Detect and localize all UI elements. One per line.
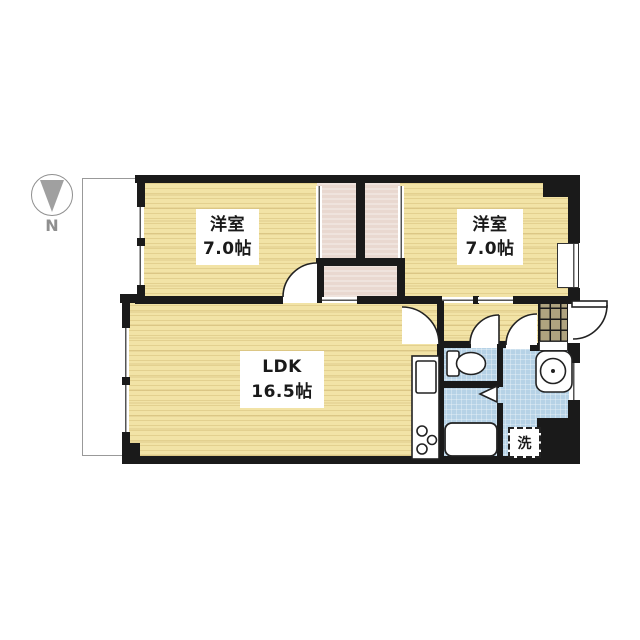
- bathroom-floor: [441, 383, 501, 460]
- wall: [497, 341, 506, 348]
- bedroom-west-label: 洋室 7.0帖: [196, 209, 259, 265]
- toilet-floor: [441, 345, 501, 385]
- compass-label: N: [40, 216, 64, 236]
- sliding-door: [478, 297, 513, 303]
- door-opening: [283, 297, 317, 303]
- ldk-label: LDK 16.5帖: [240, 351, 324, 408]
- closet-sliding-door: [316, 186, 322, 258]
- laundry-box: 洗: [508, 427, 541, 458]
- wall: [357, 296, 442, 304]
- wall: [568, 343, 580, 363]
- entrance-tiles: [538, 300, 568, 343]
- wall: [137, 183, 145, 207]
- wall: [513, 296, 580, 304]
- wall: [122, 377, 130, 385]
- wall: [497, 403, 503, 458]
- room-name: 洋室: [210, 213, 245, 237]
- pillar: [543, 175, 580, 197]
- wall: [568, 400, 580, 418]
- window: [137, 207, 144, 238]
- sliding-door: [322, 297, 357, 303]
- wall: [316, 258, 404, 266]
- window: [137, 246, 144, 285]
- window: [123, 328, 129, 377]
- pillar: [537, 418, 580, 462]
- wall: [568, 197, 580, 243]
- entrance-door: [572, 301, 607, 339]
- window: [557, 243, 579, 288]
- sliding-door: [442, 297, 473, 303]
- wall: [443, 341, 471, 348]
- entrance-step: [539, 341, 568, 351]
- wall: [356, 180, 365, 266]
- floorplan-canvas: N: [0, 0, 640, 640]
- wall: [135, 296, 283, 304]
- window: [123, 385, 129, 432]
- window: [569, 363, 579, 400]
- wall: [122, 302, 130, 328]
- room-size: 16.5帖: [251, 380, 312, 404]
- room-size: 7.0帖: [465, 237, 514, 261]
- door-opening: [471, 341, 497, 348]
- laundry-label: 洗: [518, 433, 532, 453]
- closet-sliding-door: [398, 186, 404, 258]
- wall: [441, 381, 499, 388]
- wall: [137, 238, 145, 246]
- bedroom-east-label: 洋室 7.0帖: [457, 209, 523, 265]
- room-name: LDK: [262, 355, 302, 379]
- room-name: 洋室: [473, 213, 508, 237]
- room-size: 7.0帖: [203, 237, 252, 261]
